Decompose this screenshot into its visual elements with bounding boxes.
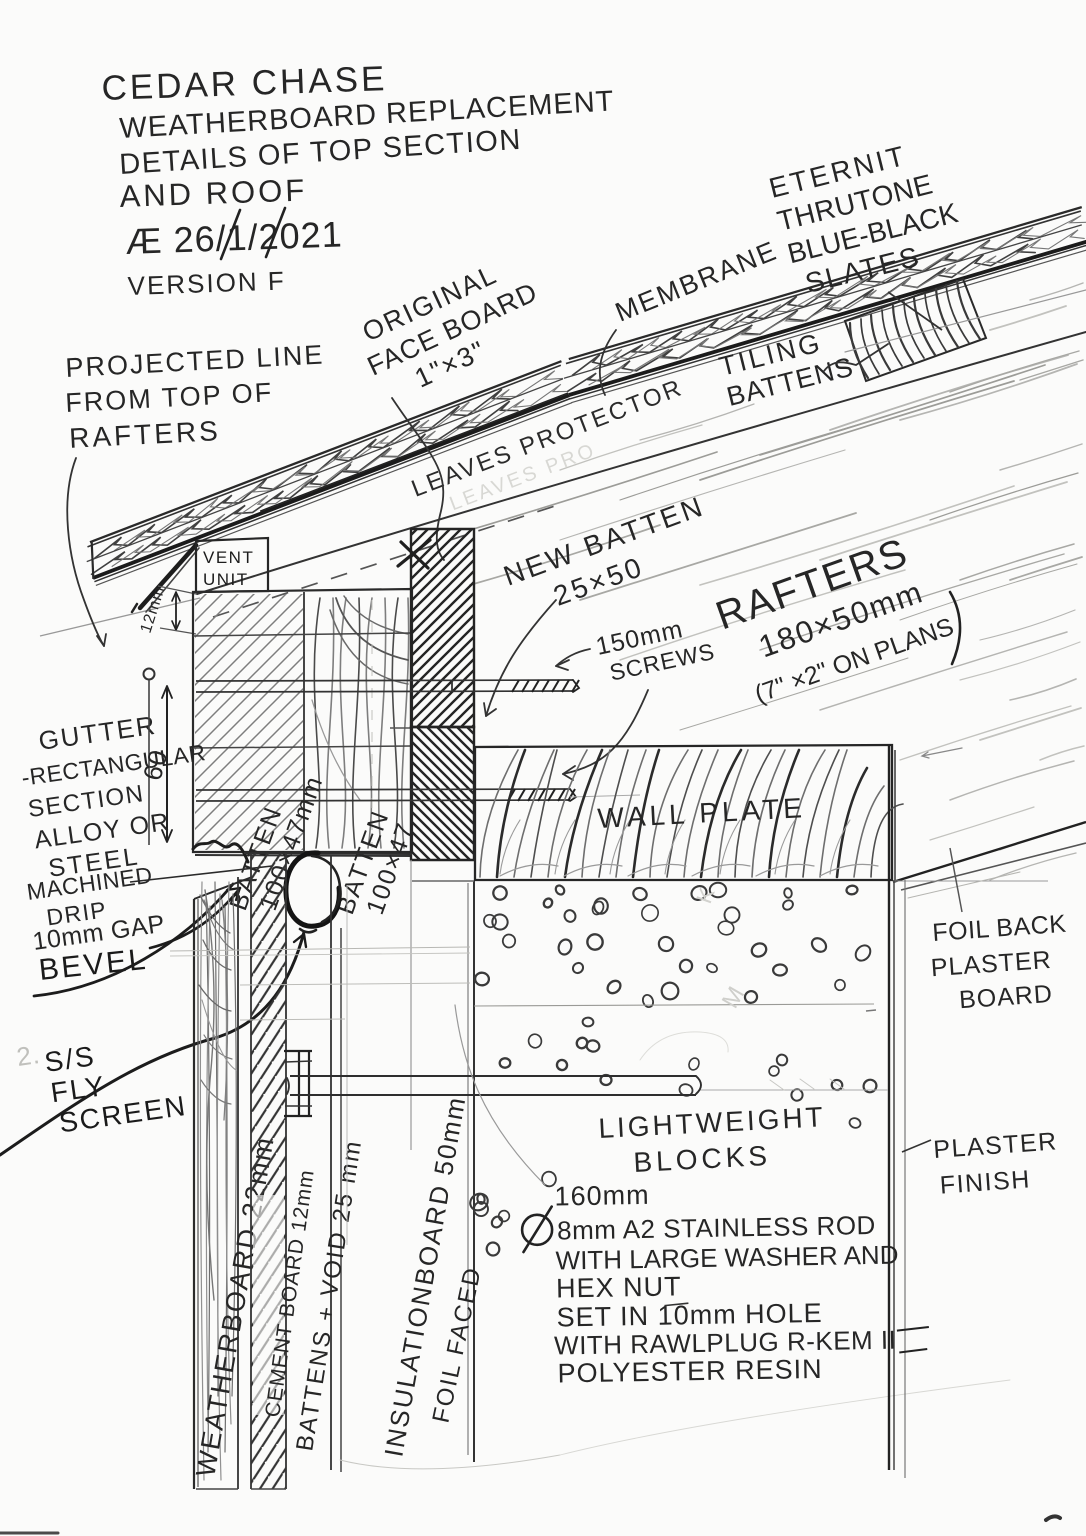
- svg-text:VENT: VENT: [203, 548, 254, 567]
- svg-text:WITH LARGE WASHER AND: WITH LARGE WASHER AND: [555, 1240, 898, 1276]
- svg-text:Æ 26/1/2021: Æ 26/1/2021: [125, 213, 343, 262]
- svg-text:VERSION F: VERSION F: [127, 265, 286, 301]
- svg-text:POLYESTER RESIN: POLYESTER RESIN: [557, 1354, 823, 1389]
- svg-text:UNIT: UNIT: [203, 570, 249, 589]
- svg-text:HEX NUT: HEX NUT: [556, 1271, 682, 1303]
- svg-text:160mm: 160mm: [554, 1180, 650, 1212]
- svg-text:2.: 2.: [15, 1039, 43, 1072]
- svg-text:AND ROOF: AND ROOF: [119, 172, 308, 214]
